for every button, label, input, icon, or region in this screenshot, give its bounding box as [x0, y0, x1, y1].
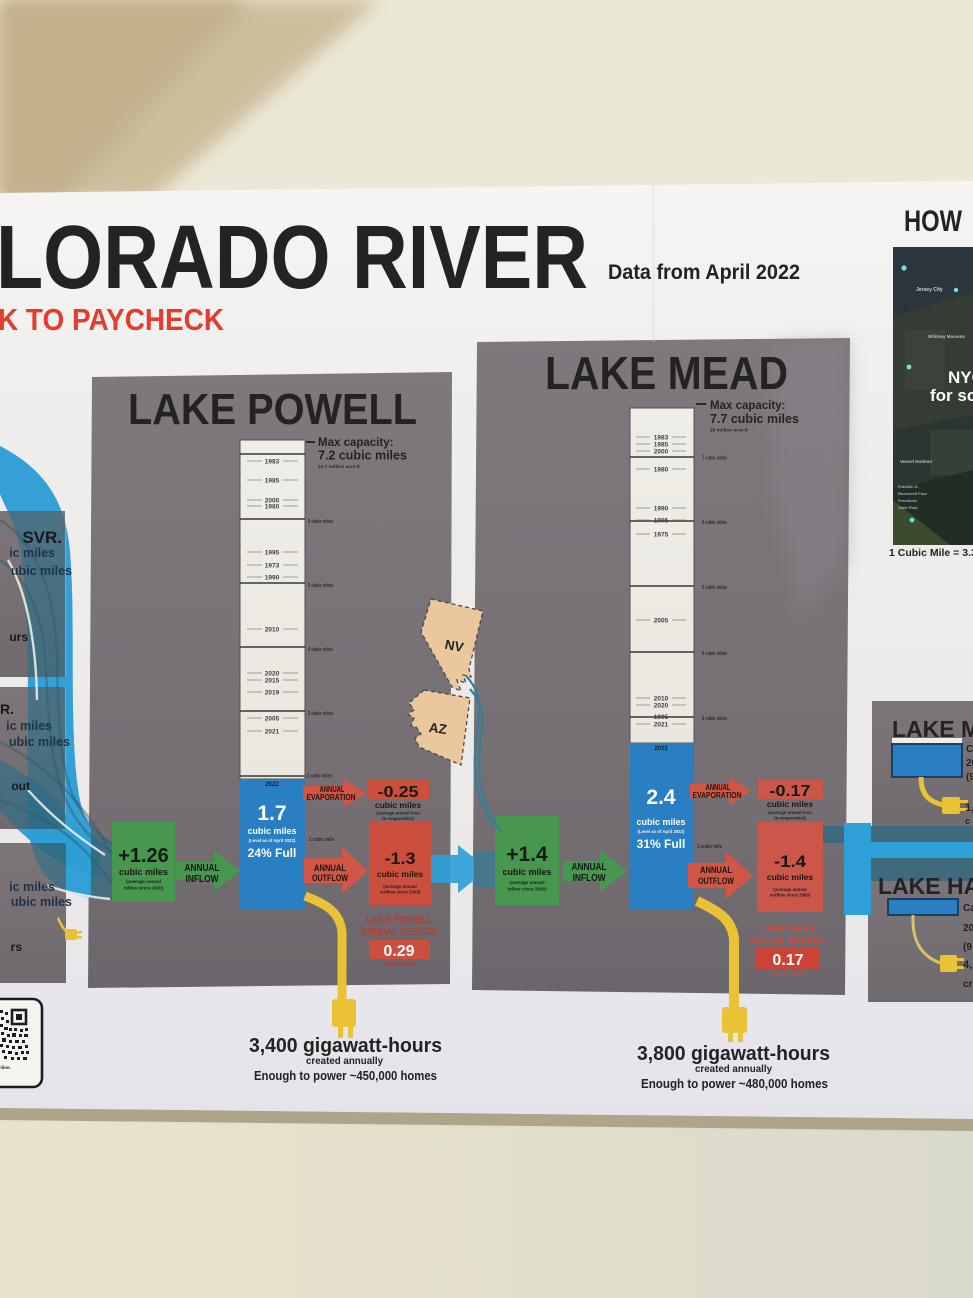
svg-text:4,: 4,: [963, 959, 972, 971]
svg-text:(average annual: (average annual: [773, 887, 806, 892]
svg-text:2022: 2022: [654, 746, 668, 752]
svg-text:out: out: [11, 779, 30, 793]
svg-text:ic miles: ic miles: [9, 880, 55, 894]
svg-text:1995: 1995: [265, 550, 280, 557]
svg-text:LAKE POWELL: LAKE POWELL: [366, 915, 432, 926]
svg-text:28 million acre ft: 28 million acre ft: [710, 428, 748, 434]
svg-text:1985: 1985: [654, 442, 669, 449]
svg-text:4 cubic miles: 4 cubic miles: [308, 647, 333, 653]
svg-text:to evaporation): to evaporation): [774, 816, 806, 821]
svg-text:cubic miles: cubic miles: [502, 867, 551, 877]
svg-text:Vessel Hudson: Vessel Hudson: [900, 459, 932, 464]
svg-text:20: 20: [966, 758, 973, 769]
svg-text:24% Full: 24% Full: [248, 846, 297, 860]
svg-text:(Level as of April 2022): (Level as of April 2022): [249, 838, 296, 843]
svg-text:(9: (9: [963, 942, 972, 953]
svg-text:Ca: Ca: [966, 744, 973, 755]
svg-text:Ca: Ca: [963, 903, 973, 914]
svg-text:1 cubic mile: 1 cubic mile: [697, 844, 722, 850]
svg-text:1 cubic mile: 1 cubic mile: [309, 837, 334, 843]
svg-text:2020: 2020: [654, 703, 669, 710]
svg-text:1.7: 1.7: [257, 802, 286, 825]
svg-text:1983: 1983: [654, 435, 669, 442]
svg-text:-1.3: -1.3: [385, 849, 416, 868]
svg-text:outflow since 2000): outflow since 2000): [380, 890, 421, 895]
svg-text:ic miles: ic miles: [6, 719, 52, 733]
svg-text:Max capacity:: Max capacity:: [710, 400, 785, 412]
svg-text:4 cubic miles: 4 cubic miles: [702, 651, 727, 657]
svg-text:6 cubic miles: 6 cubic miles: [702, 520, 727, 526]
svg-text:7.7 cubic miles: 7.7 cubic miles: [710, 412, 799, 426]
svg-text:31% Full: 31% Full: [637, 837, 686, 851]
svg-text:7.2 cubic miles: 7.2 cubic miles: [318, 449, 407, 463]
svg-text:1995: 1995: [654, 714, 669, 721]
svg-text:(average annual loss: (average annual loss: [376, 811, 420, 816]
svg-text:EVAPORATION: EVAPORATION: [307, 793, 356, 802]
svg-text:(average annual: (average annual: [510, 880, 545, 885]
svg-text:2010: 2010: [265, 627, 280, 634]
svg-text:Enough to power ~450,000 homes: Enough to power ~450,000 homes: [254, 1068, 437, 1083]
svg-text:6 cubic miles: 6 cubic miles: [308, 519, 333, 525]
svg-text:OUTFLOW: OUTFLOW: [698, 876, 734, 887]
svg-text:EVAPORATION: EVAPORATION: [693, 791, 742, 800]
svg-text:2019: 2019: [265, 690, 280, 697]
svg-text:0.29: 0.29: [383, 943, 414, 960]
svg-text:cubic miles: cubic miles: [375, 800, 422, 810]
svg-text:LAKE POWELL: LAKE POWELL: [128, 385, 417, 434]
svg-text:(Level as of April 2022): (Level as of April 2022): [638, 829, 685, 834]
svg-text:1983: 1983: [265, 459, 280, 466]
svg-text:AZ: AZ: [428, 720, 448, 737]
svg-text:2000: 2000: [654, 449, 669, 456]
svg-text:(9: (9: [966, 772, 973, 783]
svg-text:ic miles: ic miles: [9, 546, 55, 560]
svg-text:K TO PAYCHECK: K TO PAYCHECK: [0, 302, 225, 337]
svg-text:to evaporation): to evaporation): [382, 816, 414, 821]
svg-text:1973: 1973: [265, 563, 280, 570]
svg-text:LAKE MEAD: LAKE MEAD: [545, 347, 788, 399]
svg-text:1990: 1990: [265, 575, 280, 582]
svg-text:3,400 gigawatt-hours: 3,400 gigawatt-hours: [249, 1035, 442, 1057]
svg-text:2021: 2021: [654, 722, 669, 729]
svg-text:2020: 2020: [265, 671, 280, 678]
svg-text:-0.17: -0.17: [770, 783, 811, 800]
svg-text:Roosevelt Four: Roosevelt Four: [898, 491, 928, 496]
svg-text:1985: 1985: [265, 478, 280, 485]
svg-text:R.: R.: [0, 701, 14, 717]
svg-text:5 cubic miles: 5 cubic miles: [702, 585, 727, 591]
svg-text:cubic miles: cubic miles: [119, 867, 168, 877]
svg-text:ubic miles: ubic miles: [11, 895, 72, 909]
svg-text:NYC: NYC: [948, 368, 973, 387]
svg-text:cubic miles: cubic miles: [767, 799, 814, 809]
svg-text:ANNUAL: ANNUAL: [700, 865, 732, 876]
svg-text:rs: rs: [11, 940, 23, 954]
svg-text:inflow since 2000): inflow since 2000): [507, 887, 547, 892]
svg-text:1,: 1,: [965, 802, 973, 814]
svg-text:2005: 2005: [654, 618, 669, 625]
svg-text:for sc: for sc: [930, 386, 973, 405]
svg-text:2010: 2010: [654, 696, 669, 703]
svg-text:Enough to power ~480,000 homes: Enough to power ~480,000 homes: [641, 1076, 828, 1091]
svg-text:2022: 2022: [265, 782, 279, 788]
svg-text:-0.25: -0.25: [378, 784, 419, 801]
svg-text:Whitney Museum: Whitney Museum: [928, 334, 965, 339]
svg-text:2015: 2015: [265, 678, 280, 685]
svg-text:created annually: created annually: [306, 1056, 383, 1067]
svg-text:State Park: State Park: [898, 505, 918, 510]
svg-text:-1.4: -1.4: [774, 852, 807, 871]
svg-text:LAKE MEAD: LAKE MEAD: [761, 924, 816, 935]
svg-text:ANNUAL: ANNUAL: [185, 863, 220, 874]
svg-text:ubic miles: ubic miles: [9, 735, 70, 749]
svg-text:+1.4: +1.4: [506, 843, 548, 866]
svg-text:1980: 1980: [654, 467, 669, 474]
svg-text:INFLOW: INFLOW: [186, 874, 219, 885]
svg-text:1995: 1995: [654, 518, 669, 525]
svg-text:HOW: HOW: [904, 205, 963, 238]
svg-text:(average annual loss: (average annual loss: [768, 810, 812, 815]
svg-text:0.17: 0.17: [772, 952, 803, 969]
svg-text:2021: 2021: [265, 729, 280, 736]
svg-text:LAKE HAVAS: LAKE HAVAS: [878, 873, 973, 899]
svg-text:24.7 million acre ft: 24.7 million acre ft: [318, 464, 360, 470]
svg-text:cubic miles: cubic miles: [767, 872, 814, 882]
svg-text:20: 20: [963, 923, 973, 934]
svg-text:cubic miles: cubic miles: [247, 826, 296, 836]
svg-text:ubic miles: ubic miles: [11, 564, 72, 578]
svg-text:Jersey City: Jersey City: [916, 287, 943, 293]
svg-text:5 cubic miles: 5 cubic miles: [308, 583, 333, 589]
svg-text:Franklin D.: Franklin D.: [898, 484, 919, 489]
svg-text:+1.26: +1.26: [118, 845, 169, 867]
svg-text:3 cubic miles: 3 cubic miles: [308, 711, 333, 717]
svg-text:Max capacity:: Max capacity:: [318, 437, 393, 449]
svg-text:3 cubic miles: 3 cubic miles: [702, 716, 727, 722]
svg-text:cubic miles: cubic miles: [377, 869, 424, 879]
svg-text:1975: 1975: [654, 532, 669, 539]
svg-text:1 Cubic Mile = 3.38 Milli: 1 Cubic Mile = 3.38 Milli: [889, 547, 973, 559]
svg-text:ANNUAL DEFICIT!: ANNUAL DEFICIT!: [750, 936, 827, 947]
svg-text:created annually: created annually: [695, 1064, 772, 1075]
svg-text:INFLOW: INFLOW: [573, 873, 606, 884]
svg-text:Data from April 2022: Data from April 2022: [608, 261, 800, 284]
svg-text:2.4: 2.4: [646, 786, 676, 809]
svg-text:7 cubic miles: 7 cubic miles: [702, 456, 727, 462]
svg-text:(average annual: (average annual: [383, 884, 416, 889]
svg-text:cr: cr: [963, 979, 973, 990]
svg-text:cubic miles: cubic miles: [383, 962, 416, 968]
svg-text:1990: 1990: [654, 506, 669, 513]
svg-text:2005: 2005: [265, 716, 280, 723]
svg-text:nline.: nline.: [0, 1065, 11, 1070]
svg-text:inflow since 2000): inflow since 2000): [124, 886, 164, 891]
svg-text:c: c: [965, 816, 970, 826]
svg-text:cubic miles: cubic miles: [772, 972, 805, 978]
svg-text:ANNUAL DEFICIT!: ANNUAL DEFICIT!: [361, 927, 438, 938]
svg-text:outflow since 2000): outflow since 2000): [770, 893, 811, 898]
svg-text:1980: 1980: [265, 504, 280, 511]
svg-text:LORADO RIVER: LORADO RIVER: [0, 208, 588, 308]
svg-text:cubic miles: cubic miles: [636, 817, 685, 827]
svg-text:(average annual: (average annual: [126, 879, 161, 884]
svg-text:urs: urs: [9, 630, 28, 644]
svg-text:OUTFLOW: OUTFLOW: [312, 873, 348, 884]
svg-text:ANNUAL: ANNUAL: [572, 862, 607, 873]
svg-text:SVR.: SVR.: [22, 528, 62, 547]
svg-text:2 cubic miles: 2 cubic miles: [307, 774, 332, 780]
svg-text:3,800 gigawatt-hours: 3,800 gigawatt-hours: [637, 1043, 830, 1065]
svg-text:Freedoms: Freedoms: [898, 498, 918, 503]
